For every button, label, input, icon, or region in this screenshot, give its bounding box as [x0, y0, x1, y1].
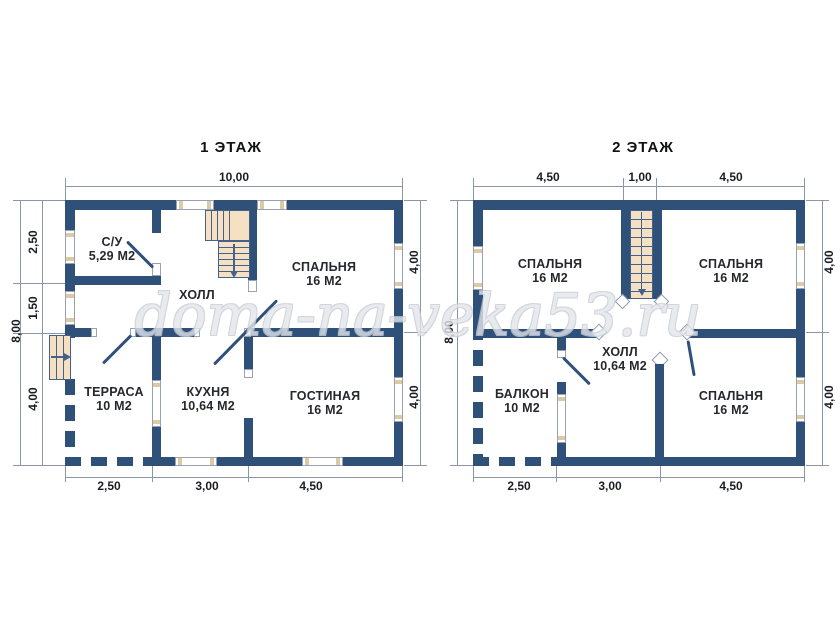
f1-dim-right-1: 4,00 — [408, 242, 420, 282]
f1-mid-wall-seg2 — [130, 328, 200, 337]
f2-dim-tick — [450, 200, 474, 201]
f2-room-bedroom-right: СПАЛЬНЯ 16 М2 — [676, 258, 786, 285]
f2-room-hall: ХОЛЛ 10,64 М2 — [565, 346, 675, 373]
f2-window-left-bedroom — [473, 246, 483, 290]
f2-stair-arrow-line — [641, 212, 642, 290]
f1-dim-tick — [152, 466, 153, 482]
f2-dim-tick — [473, 178, 474, 200]
f1-dim-tick — [404, 465, 427, 466]
floor2-title: 2 ЭТАЖ — [573, 139, 713, 156]
f1-dim-tick — [13, 200, 65, 201]
f1-window-bottom-kitchen — [175, 457, 217, 466]
f1-dim-tick — [13, 283, 65, 284]
f1-dim-tick — [65, 178, 66, 200]
room-name: С/У — [57, 236, 167, 250]
f1-dim-tick — [13, 465, 65, 466]
room-name: ГОСТИНАЯ — [270, 390, 380, 404]
f1-terrace-door — [102, 334, 132, 364]
f1-entry-arrow-right — [64, 353, 71, 361]
room-area: 16 М2 — [495, 272, 605, 286]
f1-wall-top — [65, 200, 403, 210]
f1-window-right-living — [394, 377, 403, 422]
f2-mid-wall-right — [686, 329, 796, 338]
room-area: 10,64 М2 — [153, 400, 263, 414]
f1-room-kitchen: КУХНЯ 10,64 М2 — [153, 386, 263, 413]
f1-dim-right-2: 4,00 — [408, 377, 420, 417]
f2-wall-top — [473, 200, 805, 210]
f1-mid-wall-jamb-b — [194, 328, 200, 337]
f1-su-wall-bottom — [75, 276, 161, 285]
f2-dim-tick — [804, 178, 805, 200]
floor-plan-image: 1 ЭТАЖ 10,00 8,00 2,50 1,50 4,00 4,00 4,… — [0, 0, 840, 630]
f2-stair-arrow-down — [638, 289, 646, 296]
f1-dim-tick — [402, 466, 403, 482]
f1-terrace-kitchen-wall-upper — [152, 337, 161, 380]
f2-dim-bottom-1: 2,50 — [495, 479, 543, 493]
f1-window-top-hall — [176, 200, 214, 210]
f1-dim-tick — [248, 466, 249, 482]
f1-dim-top-total: 10,00 — [210, 170, 258, 184]
f1-dim-left-3: 4,00 — [27, 379, 39, 419]
f1-dim-line-bottom — [65, 477, 403, 478]
f2-dim-bottom-3: 4,50 — [707, 479, 755, 493]
room-area: 10,64 М2 — [565, 360, 675, 374]
f2-mid-wall-left — [473, 329, 597, 338]
f2-dim-tick — [473, 466, 474, 482]
f1-room-hall: ХОЛЛ — [142, 289, 252, 303]
f2-dim-line-top — [473, 186, 805, 187]
f2-dim-tick — [806, 332, 829, 333]
f2-window-right-bedroom-bottom — [796, 377, 805, 422]
room-name: КУХНЯ — [153, 386, 263, 400]
room-name: БАЛКОН — [467, 388, 577, 402]
f1-terrace-door-jamb — [91, 328, 97, 337]
room-area: 16 М2 — [676, 404, 786, 418]
f2-dim-top-2: 1,00 — [616, 170, 664, 184]
f1-window-bottom-living — [302, 457, 343, 466]
room-area: 5,29 М2 — [57, 250, 167, 264]
f2-room-balcony: БАЛКОН 10 М2 — [467, 388, 577, 415]
f1-terrace-kitchen-wall-lower — [152, 427, 161, 457]
f1-stair-arrow-down — [230, 271, 238, 278]
f1-mid-wall-seg3 — [244, 328, 394, 337]
f1-dim-line-top — [65, 186, 403, 187]
room-name: СПАЛЬНЯ — [676, 390, 786, 404]
f1-dim-tick — [404, 332, 427, 333]
f2-dim-tick — [804, 466, 805, 482]
f1-kitchen-living-wall-lower — [244, 418, 253, 457]
f1-dim-tick — [65, 466, 66, 482]
room-area: 16 М2 — [270, 404, 380, 418]
f2-dim-left-total: 8,00 — [443, 312, 455, 352]
f1-window-right-bedroom — [394, 243, 403, 289]
f2-dim-bottom-2: 3,00 — [586, 479, 634, 493]
f2-stair-wall-right — [653, 210, 662, 299]
f2-dim-tick — [660, 466, 661, 482]
f1-room-su: С/У 5,29 М2 — [57, 236, 167, 263]
f2-dim-line-left — [457, 200, 458, 466]
f2-dim-tick — [806, 465, 829, 466]
f1-entry-arrow-line — [51, 356, 65, 358]
f1-stair-tread — [217, 210, 218, 241]
f2-room-bedroom-left: СПАЛЬНЯ 16 М2 — [495, 258, 605, 285]
f1-stair-arrow-line — [233, 244, 235, 272]
f1-wall-bottom-dashed-terrace — [65, 457, 152, 466]
floor1-title: 1 ЭТАЖ — [161, 139, 301, 156]
f2-dim-top-3: 4,50 — [707, 170, 755, 184]
f1-dim-line-right — [420, 200, 421, 466]
f1-wall-right — [394, 200, 403, 466]
f2-dim-tick — [556, 466, 557, 482]
room-name: СПАЛЬНЯ — [495, 258, 605, 272]
f1-dim-tick — [402, 178, 403, 200]
f2-dim-right-1: 4,00 — [823, 242, 835, 282]
f1-dim-bottom-2: 3,00 — [183, 479, 231, 493]
room-name: ХОЛЛ — [142, 289, 252, 303]
f2-dim-tick — [806, 200, 829, 201]
f2-window-right-bedroom-top — [796, 243, 805, 289]
f2-dim-line-right — [822, 200, 823, 466]
f2-dim-tick — [450, 465, 474, 466]
f2-dim-right-2: 4,00 — [823, 377, 835, 417]
f2-stair-wall-left — [621, 210, 630, 299]
room-area: 16 М2 — [269, 275, 379, 289]
f2-dim-line-bottom — [473, 477, 805, 478]
f1-stair-tread — [211, 210, 212, 241]
f1-room-living: ГОСТИНАЯ 16 М2 — [270, 390, 380, 417]
f1-dim-left-total: 8,00 — [10, 311, 22, 351]
f1-dim-tick — [404, 200, 427, 201]
room-name: СПАЛЬНЯ — [269, 261, 379, 275]
room-area: 16 М2 — [676, 272, 786, 286]
f1-stair-tread — [223, 210, 224, 241]
f2-wall-right — [796, 200, 805, 466]
f2-room-bedroom-bottom: СПАЛЬНЯ 16 М2 — [676, 390, 786, 417]
f2-wall-bottom-dashed-balcony — [473, 457, 556, 466]
f1-window-left-hall — [65, 291, 75, 325]
f2-bedroom-door — [687, 340, 696, 376]
room-name: СПАЛЬНЯ — [676, 258, 786, 272]
f1-dim-bottom-1: 2,50 — [85, 479, 133, 493]
f1-dim-bottom-3: 4,50 — [287, 479, 335, 493]
f1-window-top-bedroom — [257, 200, 287, 210]
f2-hall-bedroom-wall — [655, 364, 664, 457]
f1-kitchen-living-wall-upper — [244, 337, 253, 369]
f2-wall-bottom — [556, 457, 805, 466]
room-area: 10 М2 — [467, 402, 577, 416]
f1-dim-left-2: 1,50 — [27, 288, 39, 328]
f1-su-wall-right-upper — [152, 210, 161, 233]
f1-dim-left-1: 2,50 — [27, 222, 39, 262]
f1-room-bedroom: СПАЛЬНЯ 16 М2 — [269, 261, 379, 288]
room-name: ХОЛЛ — [565, 346, 675, 360]
f1-stair-tread — [229, 210, 230, 241]
f1-kitchen-living-jamb — [244, 369, 253, 378]
f2-dim-top-1: 4,50 — [524, 170, 572, 184]
